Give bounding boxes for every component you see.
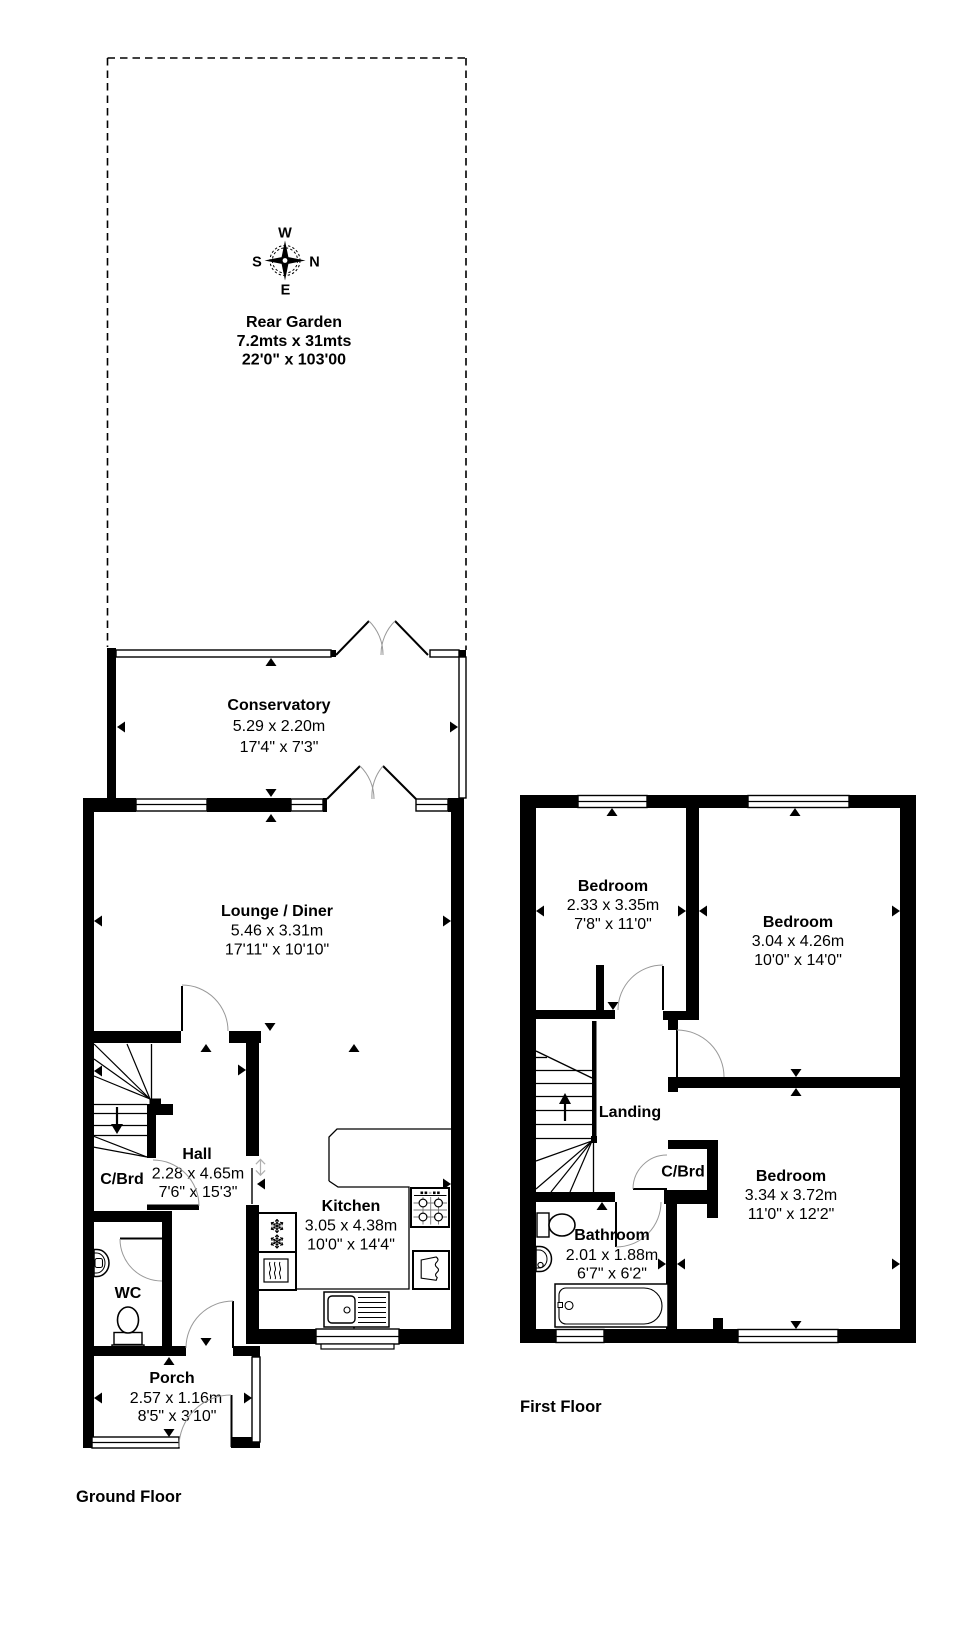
svg-text:Rear Garden: Rear Garden bbox=[246, 314, 342, 331]
svg-text:Porch: Porch bbox=[149, 1370, 194, 1387]
svg-text:2.28 x 4.65m: 2.28 x 4.65m bbox=[152, 1166, 245, 1183]
svg-text:3.05 x 4.38m: 3.05 x 4.38m bbox=[305, 1218, 398, 1235]
svg-text:2.57 x 1.16m: 2.57 x 1.16m bbox=[130, 1390, 223, 1407]
svg-text:W: W bbox=[278, 226, 292, 242]
svg-text:S: S bbox=[252, 255, 262, 271]
svg-text:C/Brd: C/Brd bbox=[100, 1171, 144, 1188]
svg-text:6'7" x 6'2": 6'7" x 6'2" bbox=[577, 1266, 647, 1283]
svg-text:11'0" x 12'2": 11'0" x 12'2" bbox=[748, 1206, 835, 1223]
svg-text:Kitchen: Kitchen bbox=[322, 1198, 381, 1215]
svg-text:5.29 x 2.20m: 5.29 x 2.20m bbox=[233, 718, 326, 735]
svg-text:Ground Floor: Ground Floor bbox=[76, 1488, 182, 1506]
svg-text:Bedroom: Bedroom bbox=[578, 878, 648, 895]
svg-text:7'8" x 11'0": 7'8" x 11'0" bbox=[574, 916, 652, 933]
svg-text:3.04 x 4.26m: 3.04 x 4.26m bbox=[752, 933, 845, 950]
svg-text:2.33 x 3.35m: 2.33 x 3.35m bbox=[567, 897, 660, 914]
svg-text:C/Brd: C/Brd bbox=[661, 1164, 705, 1181]
svg-text:Bedroom: Bedroom bbox=[763, 914, 833, 931]
svg-text:Lounge / Diner: Lounge / Diner bbox=[221, 903, 333, 920]
svg-text:8'5" x 3'10": 8'5" x 3'10" bbox=[138, 1408, 217, 1425]
svg-text:Landing: Landing bbox=[599, 1104, 661, 1121]
svg-text:3.34 x 3.72m: 3.34 x 3.72m bbox=[745, 1187, 838, 1204]
svg-text:10'0" x 14'4": 10'0" x 14'4" bbox=[307, 1237, 395, 1254]
svg-text:17'11" x 10'10": 17'11" x 10'10" bbox=[225, 942, 329, 959]
svg-text:5.46 x 3.31m: 5.46 x 3.31m bbox=[231, 923, 324, 940]
svg-text:Hall: Hall bbox=[182, 1146, 211, 1163]
svg-text:17'4" x 7'3": 17'4" x 7'3" bbox=[240, 739, 319, 756]
svg-text:7.2mts x 31mts: 7.2mts x 31mts bbox=[237, 333, 352, 350]
svg-text:Conservatory: Conservatory bbox=[227, 697, 330, 714]
svg-text:2.01 x 1.88m: 2.01 x 1.88m bbox=[566, 1247, 659, 1264]
svg-text:Bedroom: Bedroom bbox=[756, 1168, 826, 1185]
svg-text:22'0" x 103'00: 22'0" x 103'00 bbox=[242, 352, 346, 369]
svg-text:Bathroom: Bathroom bbox=[574, 1227, 650, 1244]
svg-text:First Floor: First Floor bbox=[520, 1398, 602, 1416]
svg-text:WC: WC bbox=[115, 1285, 142, 1302]
svg-text:N: N bbox=[309, 255, 319, 271]
svg-text:10'0" x 14'0": 10'0" x 14'0" bbox=[754, 952, 842, 969]
svg-text:E: E bbox=[281, 283, 291, 299]
